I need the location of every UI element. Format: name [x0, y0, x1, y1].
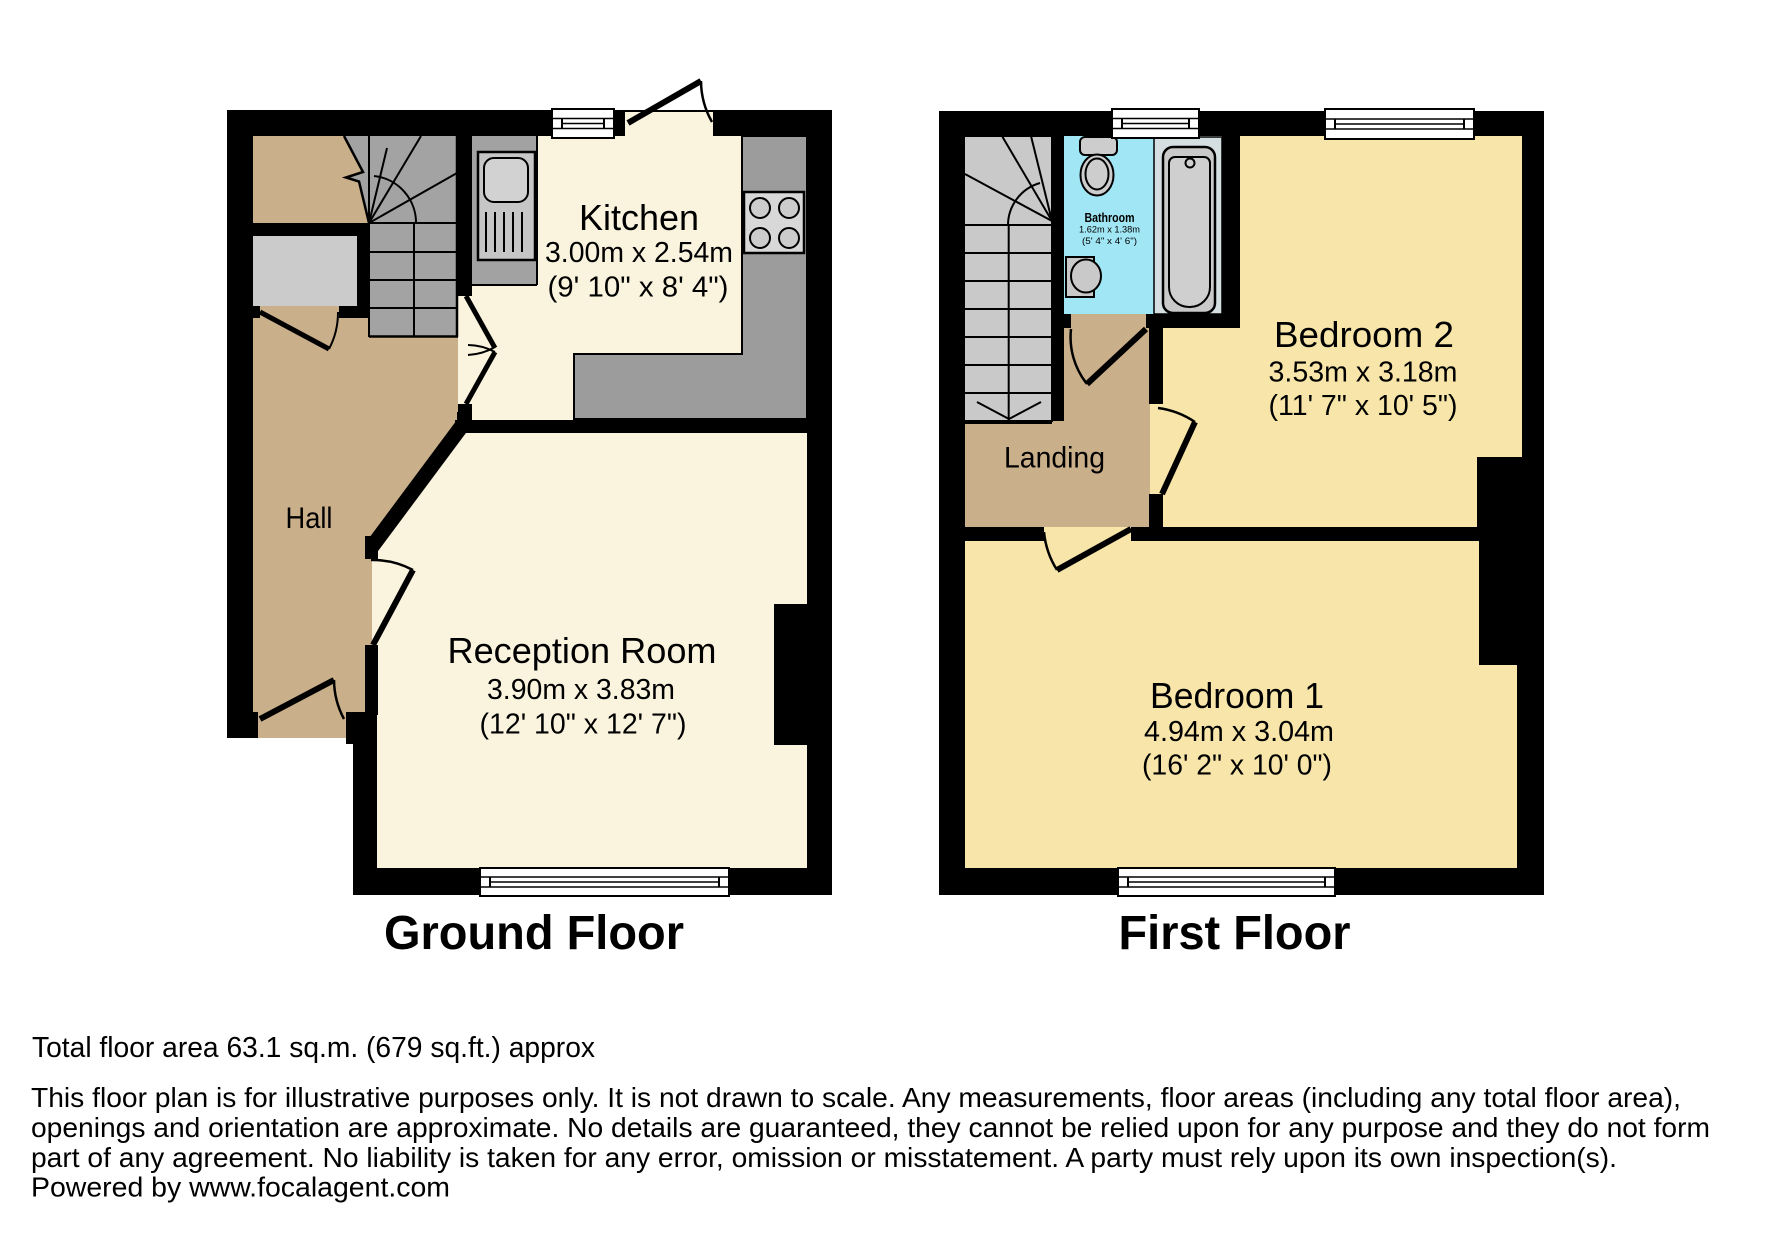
svg-text:1.62m x 1.38m: 1.62m x 1.38m: [1079, 225, 1140, 236]
svg-text:part of any agreement. No liab: part of any agreement. No liability is t…: [31, 1142, 1617, 1173]
svg-text:3.53m x 3.18m: 3.53m x 3.18m: [1269, 357, 1458, 389]
svg-text:(11' 7" x 10' 5"): (11' 7" x 10' 5"): [1269, 390, 1458, 422]
svg-text:First Floor: First Floor: [1119, 907, 1351, 960]
svg-text:3.90m x 3.83m: 3.90m x 3.83m: [487, 674, 675, 706]
svg-text:Kitchen: Kitchen: [579, 197, 699, 238]
svg-text:(16' 2" x 10' 0"): (16' 2" x 10' 0"): [1142, 750, 1332, 782]
svg-text:Bedroom 1: Bedroom 1: [1150, 675, 1324, 716]
svg-text:Bathroom: Bathroom: [1085, 210, 1135, 225]
svg-text:(5' 4" x 4' 6"): (5' 4" x 4' 6"): [1082, 236, 1137, 247]
svg-text:Total floor area 63.1 sq.m. (6: Total floor area 63.1 sq.m. (679 sq.ft.)…: [32, 1032, 595, 1064]
svg-text:(9' 10" x 8' 4"): (9' 10" x 8' 4"): [548, 272, 729, 304]
svg-text:openings and orientation are a: openings and orientation are approximate…: [31, 1112, 1710, 1143]
svg-text:This floor plan is for illustr: This floor plan is for illustrative purp…: [31, 1082, 1681, 1113]
svg-text:Powered by www.focalagent.com: Powered by www.focalagent.com: [31, 1172, 450, 1203]
svg-text:Ground Floor: Ground Floor: [384, 907, 684, 960]
svg-text:(12' 10" x 12' 7"): (12' 10" x 12' 7"): [480, 709, 687, 741]
svg-text:Hall: Hall: [286, 502, 333, 535]
svg-text:3.00m x 2.54m: 3.00m x 2.54m: [545, 237, 733, 269]
svg-text:4.94m x 3.04m: 4.94m x 3.04m: [1144, 716, 1334, 748]
svg-text:Landing: Landing: [1004, 442, 1105, 475]
svg-text:Reception Room: Reception Room: [448, 630, 717, 671]
svg-text:Bedroom 2: Bedroom 2: [1274, 314, 1454, 355]
